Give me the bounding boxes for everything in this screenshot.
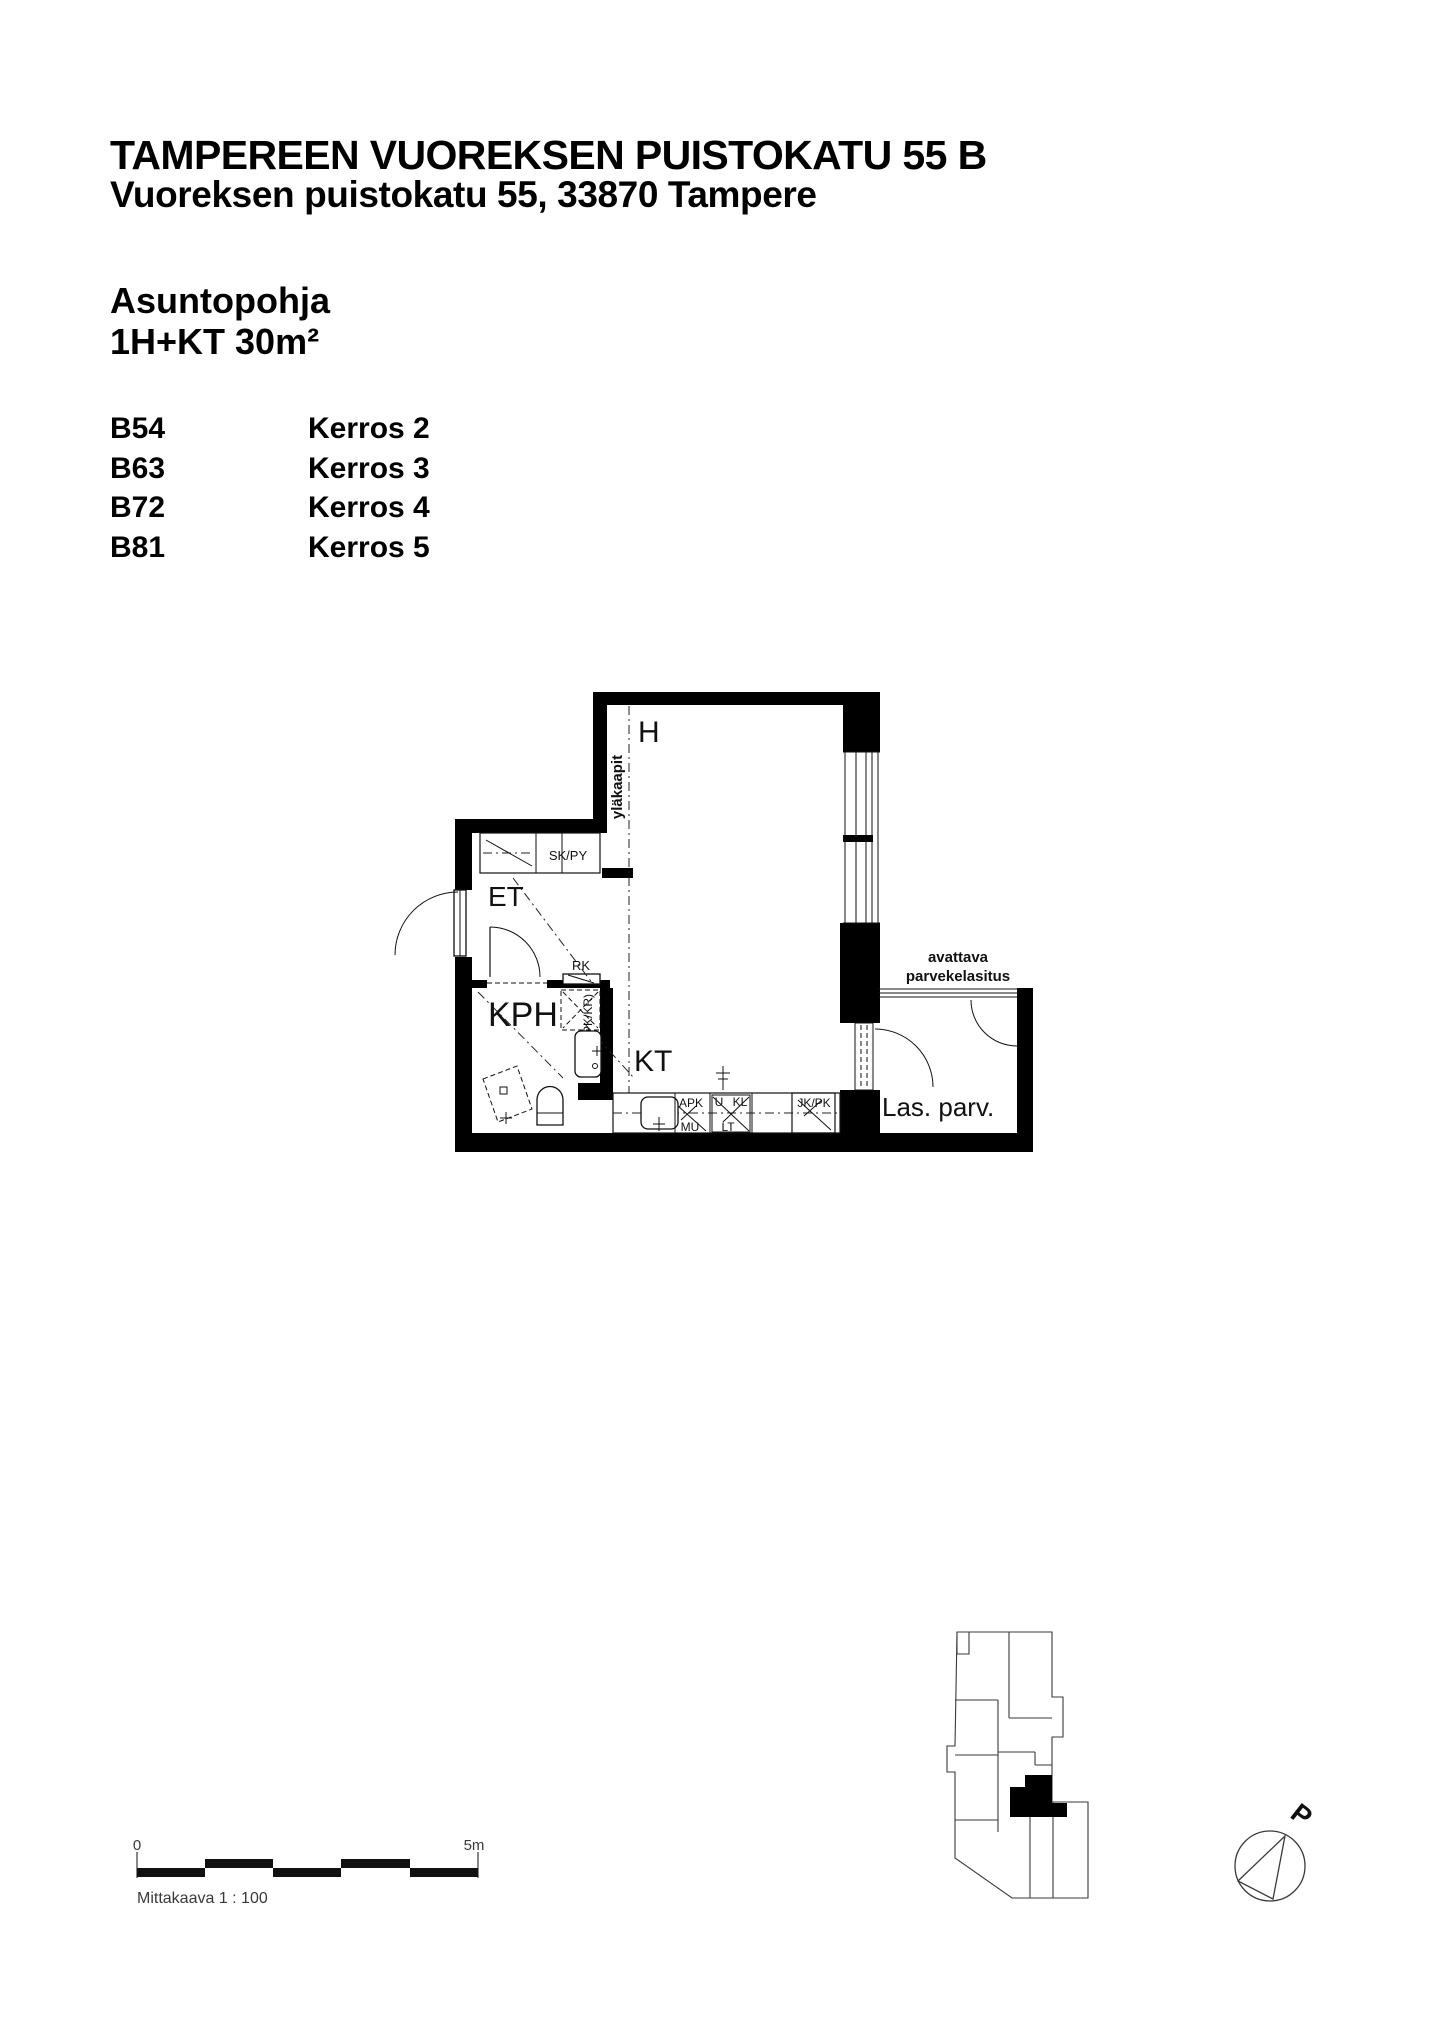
- compass-circle: [1235, 1831, 1305, 1901]
- wall-segment: [455, 957, 472, 1133]
- electrical-panel: RK: [563, 958, 600, 984]
- entrance-door: [395, 890, 466, 956]
- balcony-glazing: [878, 989, 1017, 1046]
- window-mullion: [843, 835, 873, 842]
- floor-plan-page: TAMPEREEN VUOREKSEN PUISTOKATU 55 B Vuor…: [0, 0, 1440, 2036]
- scale-bar-segment: [341, 1859, 410, 1868]
- dishwasher-label: APK: [679, 1096, 703, 1110]
- room-labels: H ET KPH KT Las. parv. avattava parvekel…: [488, 716, 1010, 1122]
- wall-segment: [843, 705, 880, 752]
- balcony-door-glass: [861, 1025, 867, 1088]
- window: [843, 752, 880, 923]
- entrance-door-swing-arc: [395, 892, 458, 955]
- bathroom-door: [487, 927, 547, 983]
- scale-caption: Mittakaava 1 : 100: [137, 1890, 268, 1907]
- glazing-panel-swing-arc: [971, 1000, 1017, 1046]
- wall-segment: [600, 988, 613, 1083]
- bathroom-label: KPH: [488, 996, 558, 1034]
- drawing-canvas: SK/PY RK yläkaapit: [0, 0, 1440, 2036]
- wall-segment: [455, 1133, 1033, 1152]
- building-interior-lines: [955, 1632, 1053, 1898]
- fridge-label: JK/PK: [797, 1096, 830, 1110]
- balcony-door: [855, 1023, 933, 1090]
- kitchen-label: KT: [634, 1045, 672, 1078]
- balcony-glazing-note-line1: avattava: [928, 949, 989, 966]
- shower-drain: [500, 1087, 507, 1094]
- floor-plan: SK/PY RK yläkaapit: [395, 692, 1033, 1152]
- building-outline: [947, 1632, 1088, 1898]
- wall-segment: [470, 980, 487, 988]
- microwave-label: MU: [681, 1120, 700, 1134]
- vent-icon: [716, 1066, 730, 1090]
- scale-bar: 0 5m Mittakaava 1 : 100: [133, 1837, 485, 1907]
- oven-label: U: [715, 1095, 724, 1109]
- upper-cabinets-label: yläkaapit: [609, 755, 626, 819]
- site-plan: [947, 1632, 1088, 1898]
- balcony-door-swing-arc: [875, 1029, 933, 1087]
- walls: [455, 692, 1033, 1152]
- floor-drain-icon: [500, 1112, 512, 1124]
- scale-bar-segment: [205, 1859, 273, 1868]
- wall-segment: [578, 1083, 613, 1100]
- wall-segment: [840, 923, 880, 1023]
- wall-segment: [602, 868, 633, 878]
- balcony-door-frame: [855, 1023, 873, 1090]
- scale-end-label: 5m: [464, 1837, 485, 1854]
- glazing-lines: [878, 989, 1017, 997]
- wall-segment: [455, 819, 607, 833]
- compass-needle: [1238, 1836, 1285, 1899]
- scale-bar-segment: [410, 1868, 478, 1877]
- north-label: P: [1285, 1798, 1318, 1833]
- scale-zero-label: 0: [133, 1837, 141, 1854]
- scale-bar-segment: [137, 1868, 205, 1877]
- wall-segment: [1017, 988, 1033, 1133]
- bathroom-door-swing-arc: [490, 927, 540, 977]
- cooktop-label: KL: [733, 1095, 748, 1109]
- wall-segment: [455, 833, 472, 890]
- highlighted-apartment: [1010, 1775, 1067, 1817]
- wall-segment: [840, 1090, 880, 1133]
- toilet: [537, 1087, 563, 1126]
- north-arrow: P: [1235, 1798, 1318, 1901]
- scale-bar-segment: [273, 1868, 341, 1877]
- stove-label: LT: [721, 1120, 735, 1134]
- entry-label: ET: [488, 881, 524, 912]
- wall-segment: [593, 705, 607, 819]
- balcony-glazing-note-line2: parvekelasitus: [906, 968, 1010, 985]
- wall-segment: [593, 692, 880, 705]
- closet-label: SK/PY: [549, 848, 588, 863]
- balcony-label: Las. parv.: [882, 1092, 994, 1122]
- entry-closet: SK/PY: [480, 833, 600, 873]
- main-room-label: H: [638, 716, 660, 749]
